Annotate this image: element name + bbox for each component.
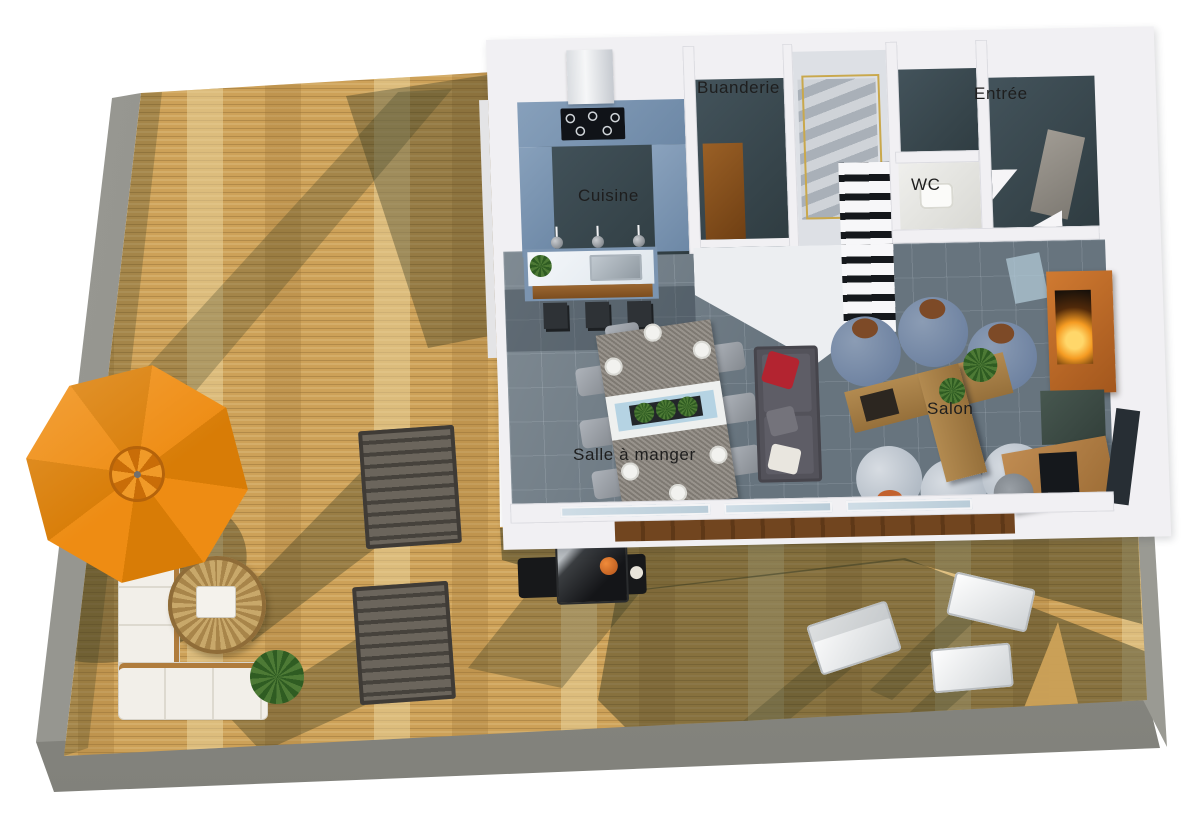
sectional-seat-cushions [118,662,268,720]
armchair-pillow [852,318,879,339]
plate [692,340,713,360]
plate [642,322,663,342]
buanderie-wood-door [703,143,746,240]
house [486,26,1171,550]
rattan-coffee-table [168,556,266,654]
folding-deck-chair [930,643,1014,694]
sun-lounger [358,425,462,549]
cooktop [560,107,625,140]
bar-stool [543,302,568,328]
fireplace [1046,270,1116,393]
label-salon: Salon [927,399,973,419]
kitchen-counter-right [652,144,690,252]
label-entree: Entrée [974,84,1028,104]
kitchen-island [523,247,659,302]
range-hood [566,49,614,104]
sliding-glass-door [724,501,832,514]
plate [603,356,624,376]
label-cuisine: Cuisine [578,186,639,206]
sofa [754,345,823,482]
island-sink [589,254,642,281]
armchair-pillow [919,299,946,320]
label-wc: WC [911,175,941,195]
island-wood-front [532,284,652,299]
sun-lounger [352,581,456,705]
label-salle-a-manger: Salle à manger [573,445,696,465]
serving-tray [196,586,236,618]
firebox [1055,290,1094,365]
plate [708,445,729,465]
dining-set [568,305,767,527]
potted-plant [250,650,304,704]
label-buanderie: Buanderie [697,78,780,98]
hall-corridor-floor [898,68,979,162]
kitchen-counter-left [519,147,556,258]
floor-plan-render: Buanderie Entrée WC Cuisine Salle à mang… [0,0,1200,829]
